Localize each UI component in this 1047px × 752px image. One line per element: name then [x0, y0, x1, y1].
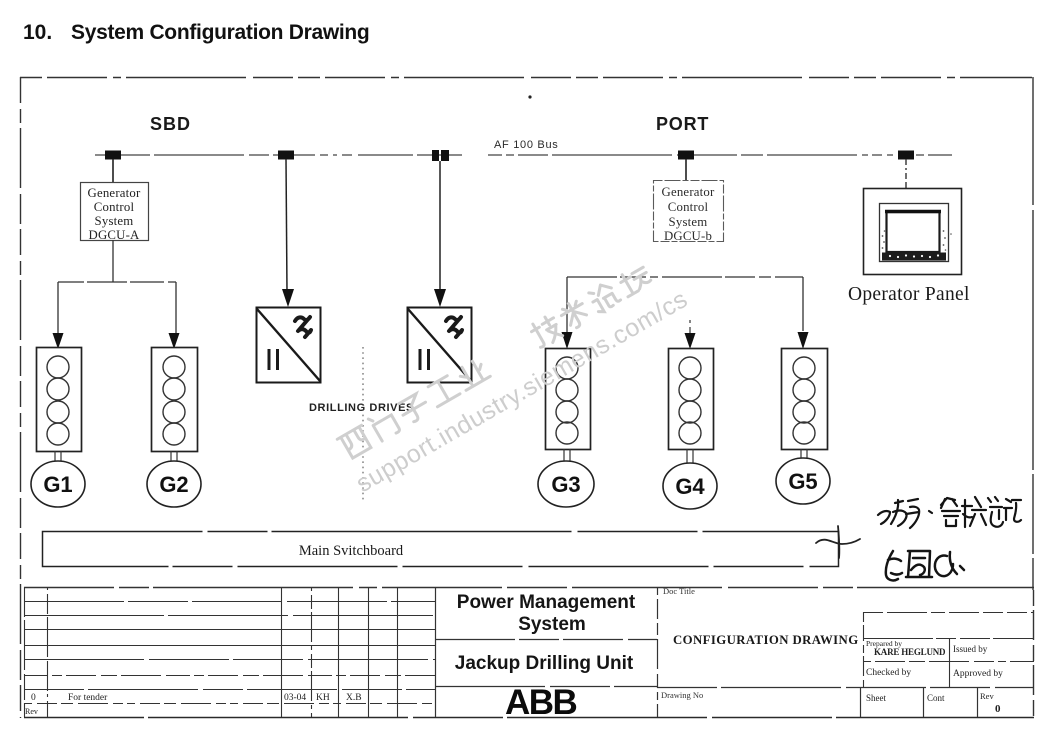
svg-text:Power Management: Power Management [457, 592, 636, 613]
svg-text:System: System [669, 215, 708, 229]
svg-text:G3: G3 [551, 472, 580, 497]
svg-text:0: 0 [31, 693, 36, 703]
svg-text:03-04: 03-04 [284, 693, 306, 703]
svg-text:System: System [518, 614, 586, 635]
svg-text:For tender: For tender [68, 693, 108, 703]
svg-text:Rev: Rev [25, 707, 38, 716]
svg-text:Issued by: Issued by [953, 644, 988, 654]
svg-text:PORT: PORT [656, 114, 709, 134]
svg-text:SBD: SBD [150, 114, 191, 134]
svg-text:Checked by: Checked by [866, 668, 911, 678]
svg-text:Control: Control [94, 200, 135, 214]
svg-text:AF 100 Bus: AF 100 Bus [494, 139, 558, 151]
svg-text:Drawing No: Drawing No [661, 690, 703, 700]
svg-text:Rev: Rev [980, 691, 994, 701]
svg-text:X.B: X.B [346, 693, 362, 703]
svg-text:DGCU-A: DGCU-A [89, 228, 141, 242]
svg-text:Jackup Drilling Unit: Jackup Drilling Unit [455, 653, 634, 674]
svg-text:10.: 10. [23, 21, 52, 44]
svg-text:Main Svitchboard: Main Svitchboard [299, 543, 404, 559]
svg-text:G4: G4 [675, 474, 705, 499]
svg-text:support.industry.siemens.com/c: support.industry.siemens.com/cs [351, 285, 692, 498]
svg-text:Generator: Generator [662, 185, 715, 199]
svg-text:G5: G5 [788, 469, 817, 494]
svg-text:Cont: Cont [927, 693, 945, 703]
svg-text:G2: G2 [159, 472, 188, 497]
svg-text:Control: Control [668, 200, 709, 214]
svg-text:Operator Panel: Operator Panel [848, 284, 970, 305]
svg-text:Generator: Generator [88, 186, 141, 200]
svg-text:DGCU-b: DGCU-b [664, 229, 712, 243]
svg-text:G1: G1 [43, 472, 72, 497]
svg-text:0: 0 [995, 703, 1001, 715]
svg-text:Sheet: Sheet [866, 693, 886, 703]
svg-text:KH: KH [316, 693, 330, 703]
svg-text:KARE HEGLUND: KARE HEGLUND [874, 647, 946, 657]
svg-text:System Configuration Drawing: System Configuration Drawing [71, 21, 369, 44]
svg-text:CONFIGURATION DRAWING: CONFIGURATION DRAWING [673, 633, 859, 647]
svg-text:System: System [95, 214, 134, 228]
svg-text:Doc Title: Doc Title [663, 586, 695, 596]
svg-text:Approved by: Approved by [953, 669, 1003, 679]
svg-text:ABB: ABB [505, 683, 577, 722]
